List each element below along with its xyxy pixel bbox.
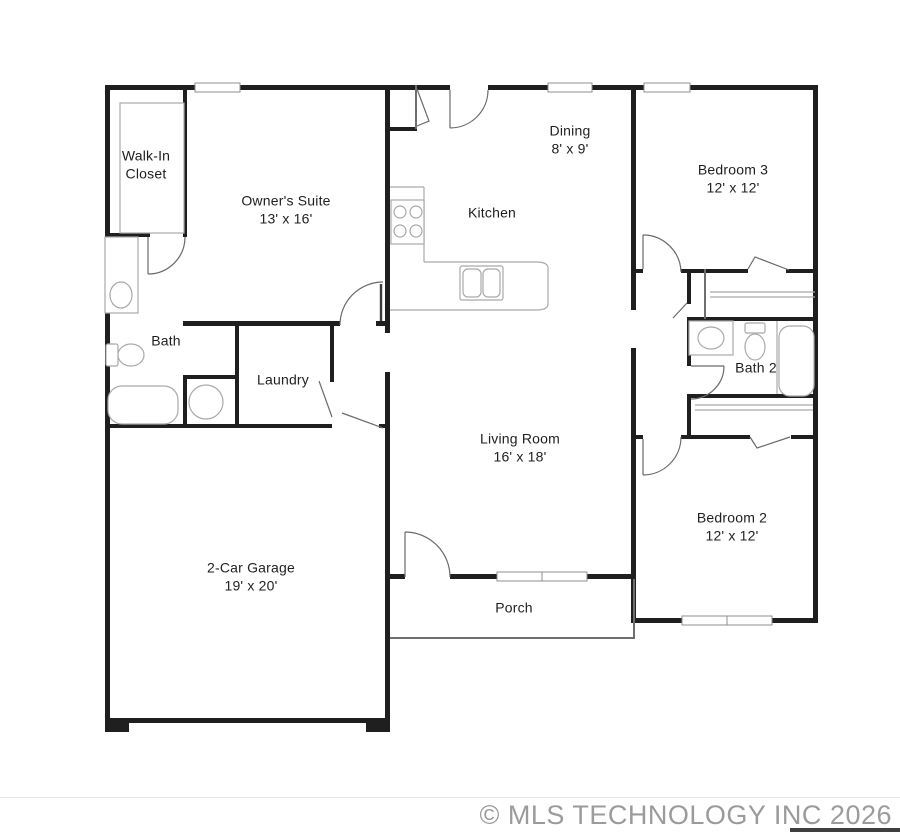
wall [183,321,340,326]
stove-burner-icon [394,206,406,218]
wall [681,269,748,273]
door-swing [148,237,185,274]
closet-door [750,437,790,448]
wall [631,85,636,310]
floorplan-drawing [0,0,900,832]
window [548,83,592,92]
door-swing [643,235,681,272]
room-label-bath: Bath [151,332,181,350]
door-swing [450,90,488,128]
door-swing [643,437,681,475]
room-label-garage: 2-Car Garage 19' x 20' [207,560,295,595]
window [195,83,240,92]
garage-door-jamb [105,723,129,732]
door-swing [405,532,450,577]
sink-basin-icon [483,269,500,297]
wall [786,269,818,273]
window [644,83,690,92]
bottom-right-bar [790,828,900,832]
wall [687,269,691,304]
closet-rod [695,405,813,410]
wall [681,435,750,439]
laundry-door [319,381,332,417]
stove-burner-icon [394,225,406,237]
toilet-icon [745,334,765,360]
wall [183,375,239,379]
pantry-door [417,89,429,126]
wall [330,326,334,382]
room-label-bedroom-2: Bedroom 2 12' x 12' [697,510,767,545]
bathtub-icon [108,386,178,424]
room-label-porch: Porch [495,599,533,617]
room-label-dining: Dining 8' x 9' [550,123,591,158]
wall [791,435,818,439]
toilet-icon [118,344,144,366]
stove-burner-icon [410,225,422,237]
porch-edge [633,579,635,639]
room-label-bedroom-3: Bedroom 3 12' x 12' [698,162,768,197]
windows [195,83,772,625]
room-label-bath-2: Bath 2 [735,359,777,377]
wall [687,394,691,439]
wall [105,718,390,723]
wall [385,85,390,333]
door-swing [340,282,383,325]
wall [390,574,405,579]
room-label-walk-in-closet: Walk-In Closet [122,148,170,183]
wall [687,317,818,321]
sink-icon [698,327,724,349]
wall [631,435,643,439]
toilet-tank-icon [745,323,765,333]
closet-rod [710,292,815,297]
closet-door [673,303,687,318]
wall [183,375,187,428]
wall [631,269,643,273]
footer-divider [0,797,900,798]
closet-door [748,257,789,270]
water-heater-icon [189,385,223,419]
wall [376,321,390,326]
toilet-tank-icon [106,344,118,366]
pantry-partition [415,85,417,129]
thin-partitions [390,85,706,639]
porch-edge [390,637,635,639]
garage-entry-door [342,413,383,428]
copyright-watermark: © MLS TECHNOLOGY INC 2026 [479,800,892,831]
wall [105,85,450,90]
stove-burner-icon [410,206,422,218]
bathtub-icon [779,326,814,396]
wall [105,233,150,237]
floorplan-canvas: Walk-In Closet Owner's Suite 13' x 16' D… [0,0,900,832]
pantry-wall [385,127,417,131]
sink-icon [110,282,132,308]
room-label-kitchen: Kitchen [468,204,516,222]
sink-basin-icon [463,269,481,297]
room-label-laundry: Laundry [257,371,309,389]
room-label-living-room: Living Room 16' x 18' [480,431,560,466]
room-label-owners-suite: Owner's Suite 13' x 16' [241,193,330,228]
closet-partition [704,269,706,319]
garage-door-jamb [366,723,390,732]
